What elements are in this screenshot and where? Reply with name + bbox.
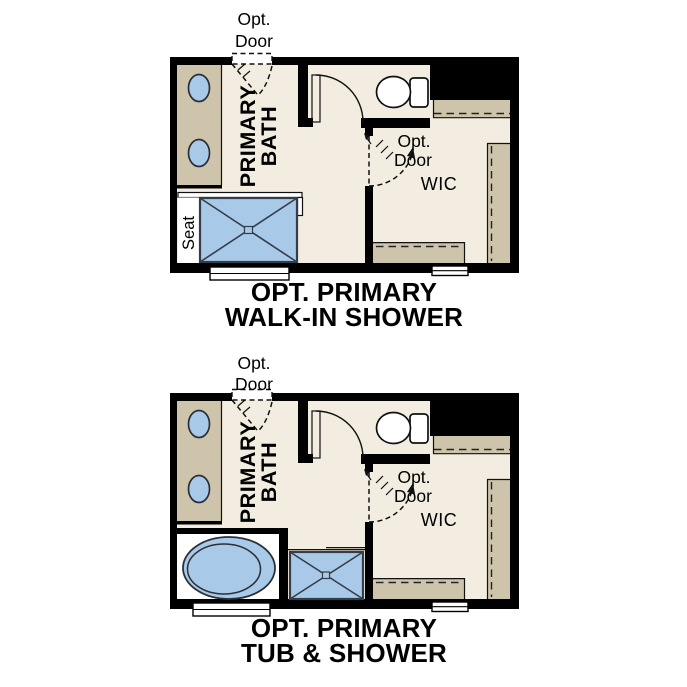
opt-door-top-label: Opt. — [237, 353, 270, 373]
closet-shelf-top — [433, 100, 510, 118]
closet-label: WIC — [421, 174, 458, 194]
opt-door-top-label: Opt. — [237, 9, 270, 29]
opt-door-top-label: Door — [235, 31, 273, 51]
plan2-tub — [177, 534, 279, 599]
tub-alcove-wall — [177, 528, 288, 534]
solid-block — [430, 393, 519, 436]
room-label: BATH — [257, 106, 281, 167]
plan1-vanity — [177, 65, 222, 189]
toilet-bowl-icon — [377, 77, 411, 108]
opt-door-wic-label: Opt. — [397, 131, 430, 151]
sink-icon — [189, 140, 210, 167]
closet-label: WIC — [421, 510, 458, 530]
closet-shelf-right — [487, 479, 510, 599]
right-wall — [510, 436, 519, 609]
plan2-toilet — [377, 413, 429, 444]
left-wall — [170, 57, 177, 273]
vanity-bottom-edge — [177, 521, 222, 525]
toilet-room-south-wall — [361, 118, 430, 128]
plan-tub-shower: Opt. Door PRIMARY BATH Opt. Door WIC OPT… — [162, 336, 522, 672]
toilet-tank-icon — [410, 78, 428, 107]
wic-wall-lower — [365, 522, 373, 599]
top-wall-mid — [272, 57, 430, 65]
top-wall-left — [170, 57, 232, 65]
room-label: BATH — [257, 442, 281, 503]
toilet-tank-icon — [410, 414, 428, 443]
toilet-bowl-icon — [377, 413, 411, 444]
opt-door-wic-label: Door — [394, 486, 432, 506]
opt-door-top-label: Door — [235, 374, 273, 394]
solid-block — [430, 57, 519, 100]
closet-shelf-right — [487, 143, 510, 263]
closet-shelf-top — [433, 436, 510, 454]
top-wall-mid — [272, 393, 430, 401]
right-wall — [510, 100, 519, 273]
left-wall — [170, 393, 177, 609]
seat-label: Seat — [180, 216, 198, 250]
floor-plan-page: Opt. Door PRIMARY BATH Opt. Door WIC Sea… — [0, 0, 687, 687]
plan2-shower — [288, 548, 365, 599]
opt-door-wic-label: Opt. — [397, 467, 430, 487]
sink-icon — [189, 75, 210, 102]
plan1-toilet — [377, 77, 429, 108]
tub-shower-divider-wall — [279, 528, 288, 599]
opt-door-wic-label: Door — [394, 150, 432, 170]
shower-drain-icon — [245, 227, 253, 234]
toilet-room-south-wall — [361, 454, 430, 464]
plan-walk-in-shower: Opt. Door PRIMARY BATH Opt. Door WIC Sea… — [162, 0, 522, 336]
vanity-bottom-edge — [177, 185, 222, 189]
sink-icon — [189, 411, 210, 438]
shower-drain-icon — [323, 572, 330, 579]
plan2-vanity — [177, 401, 222, 525]
top-wall-left — [170, 393, 232, 401]
closet-shelf-bottom — [373, 578, 465, 599]
figure-caption: TUB & SHOWER — [241, 638, 447, 668]
shower-glass-return — [298, 198, 303, 216]
shower-glass — [178, 193, 302, 198]
sink-icon — [189, 476, 210, 503]
closet-shelf-bottom — [373, 242, 465, 263]
optional-door-leaf — [232, 54, 272, 65]
wic-wall-lower — [365, 186, 373, 263]
figure-caption: WALK-IN SHOWER — [225, 302, 463, 332]
